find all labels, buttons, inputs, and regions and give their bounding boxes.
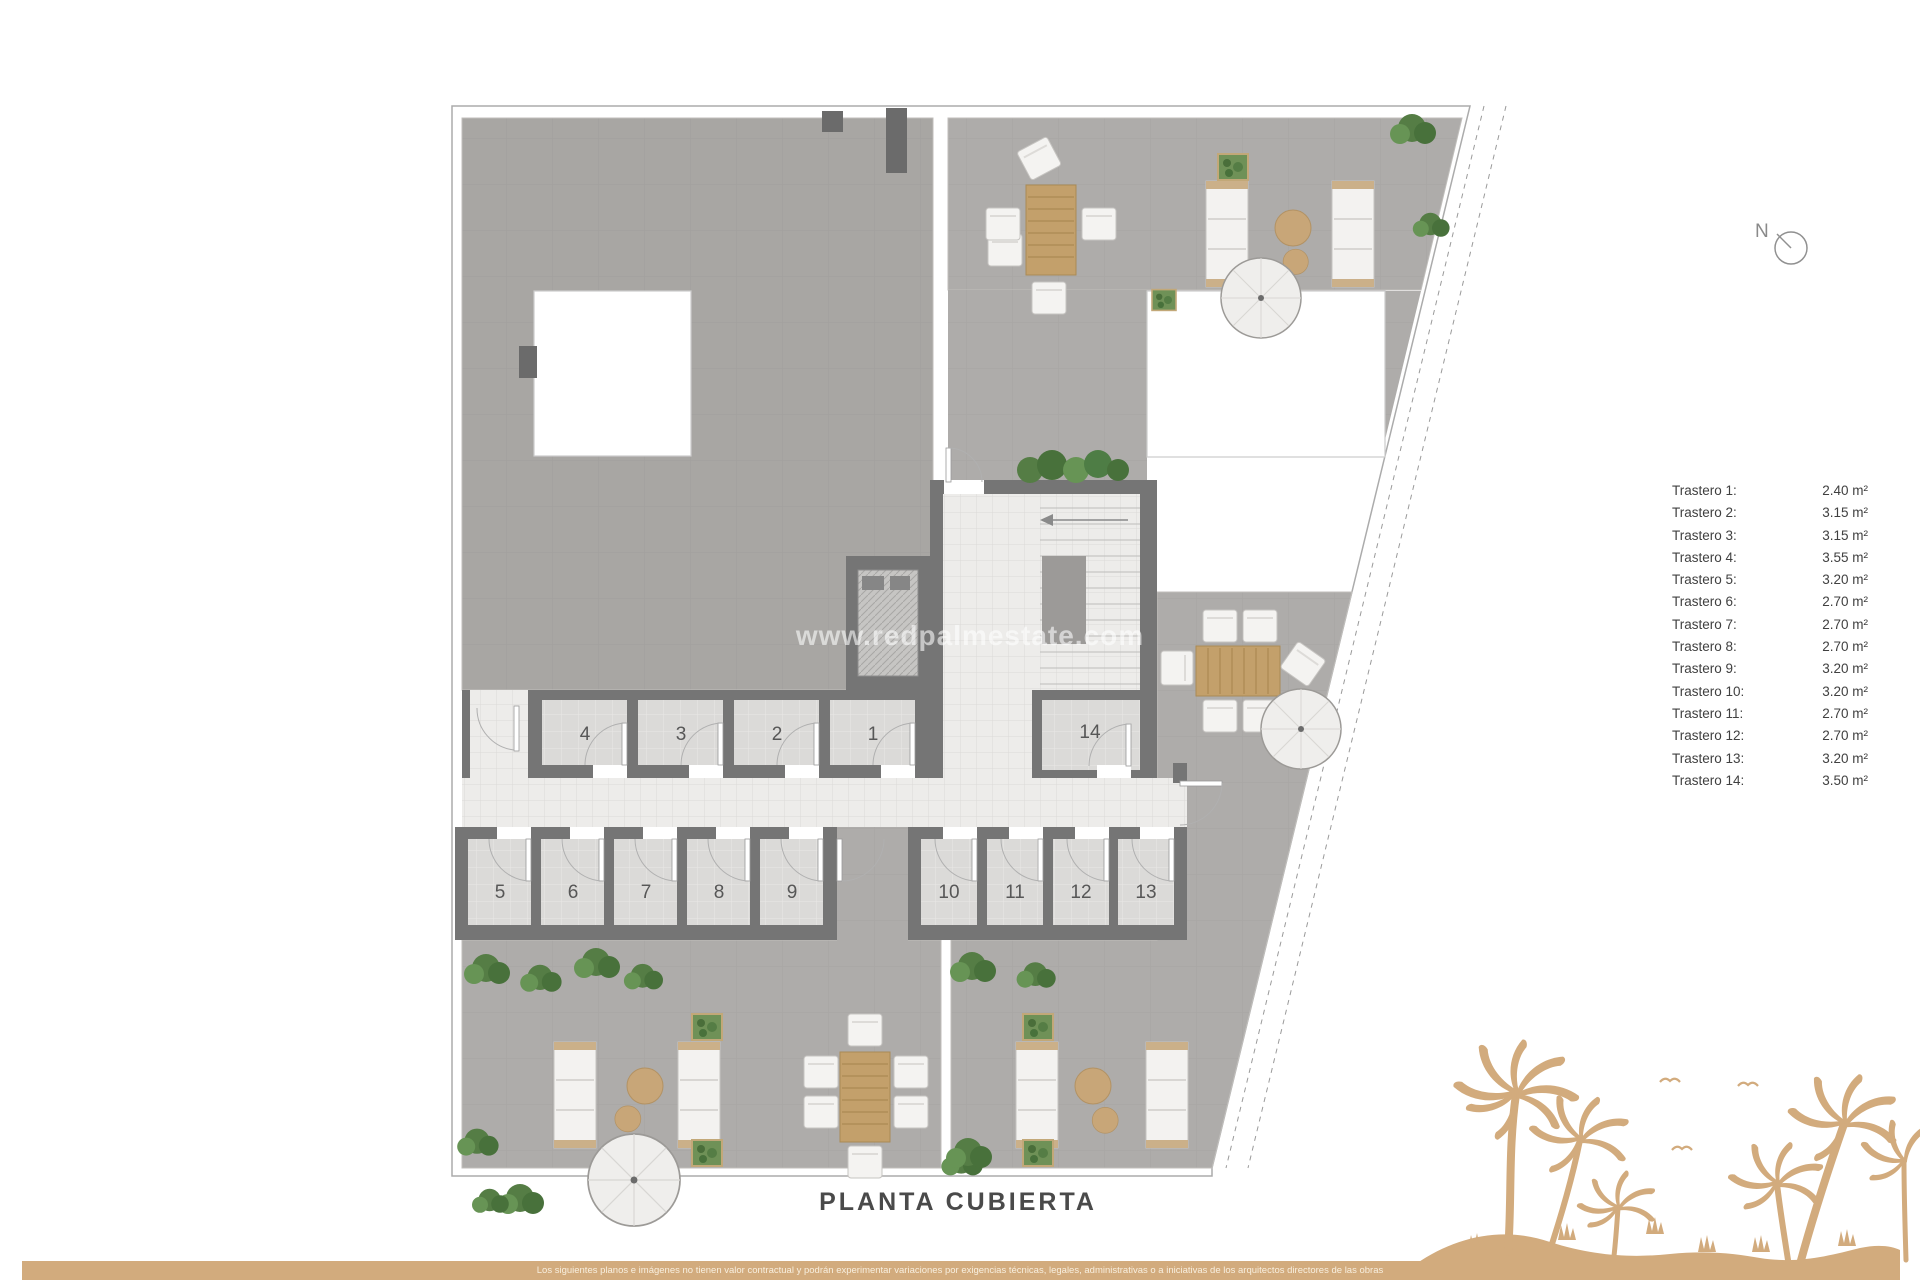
legend-row: Trastero 5:3.20 m² (1672, 569, 1868, 591)
sun-lounger (1332, 181, 1374, 287)
sun-lounger (678, 1042, 720, 1148)
legend-area: 2.40 m² (1822, 480, 1868, 502)
room-label: 7 (641, 882, 652, 903)
legend-area: 3.20 m² (1822, 748, 1868, 770)
storage-block-top (462, 690, 930, 778)
north-compass: N (1745, 212, 1835, 282)
roof-block-small (519, 346, 537, 378)
legend-area: 2.70 m² (1822, 636, 1868, 658)
legend-label: Trastero 9: (1672, 658, 1737, 680)
room-label: 4 (580, 724, 591, 745)
legend-label: Trastero 8: (1672, 636, 1737, 658)
parasol (1221, 258, 1301, 338)
planter-box (1023, 1014, 1053, 1040)
legend-area: 2.70 m² (1822, 614, 1868, 636)
planter-box (1218, 154, 1248, 180)
legend-area: 3.50 m² (1822, 770, 1868, 792)
dining-set-right (1196, 646, 1280, 696)
room-label: 9 (787, 882, 798, 903)
corridor-end-wall (1173, 763, 1187, 783)
pouf (1075, 1068, 1111, 1104)
passage (837, 827, 908, 945)
sun-lounger (1146, 1042, 1188, 1148)
palm-crowns (1451, 1038, 1920, 1231)
legend-area: 2.70 m² (1822, 725, 1868, 747)
pouf-small (615, 1106, 641, 1132)
core-wall-right (1140, 480, 1157, 700)
storage-legend: Trastero 1:2.40 m² Trastero 2:3.15 m² Tr… (1672, 480, 1868, 792)
floorplan-page: 1 2 3 4 5 6 7 8 9 10 11 12 13 14 www.red… (0, 0, 1920, 1280)
room-label: 11 (1005, 882, 1025, 903)
legend-area: 2.70 m² (1822, 591, 1868, 613)
entry-door-leaf (946, 448, 951, 482)
compass-label: N (1755, 221, 1769, 242)
legend-label: Trastero 13: (1672, 748, 1744, 770)
legend-area: 3.55 m² (1822, 547, 1868, 569)
legend-label: Trastero 1: (1672, 480, 1737, 502)
legend-label: Trastero 14: (1672, 770, 1744, 792)
legend-row: Trastero 11:2.70 m² (1672, 703, 1868, 725)
room-label: 3 (676, 724, 687, 745)
room-label: 2 (772, 724, 783, 745)
parasol (588, 1134, 680, 1226)
legend-area: 3.20 m² (1822, 681, 1868, 703)
room-label: 10 (938, 882, 959, 903)
vestibule-door-leaf (514, 706, 519, 751)
legend-row: Trastero 3:3.15 m² (1672, 525, 1868, 547)
pouf-small (1092, 1107, 1118, 1133)
room-label: 13 (1135, 882, 1156, 903)
terrace-top-right (948, 118, 1462, 290)
legend-row: Trastero 1:2.40 m² (1672, 480, 1868, 502)
footer-bar: Los siguientes planos e imágenes no tien… (22, 1261, 1898, 1280)
corridor-floor (462, 778, 1187, 827)
legend-area: 3.20 m² (1822, 569, 1868, 591)
disclaimer-text: Los siguientes planos e imágenes no tien… (22, 1261, 1898, 1280)
birds (1660, 1079, 1758, 1150)
legend-row: Trastero 7:2.70 m² (1672, 614, 1868, 636)
sun-lounger (1016, 1042, 1058, 1148)
legend-label: Trastero 11: (1672, 703, 1743, 725)
watermark: www.redpalmestate.com (740, 620, 1200, 652)
legend-area: 2.70 m² (1822, 703, 1868, 725)
planter-box (1023, 1140, 1053, 1166)
legend-area: 3.15 m² (1822, 525, 1868, 547)
room-label: 6 (568, 882, 579, 903)
legend-row: Trastero 6:2.70 m² (1672, 591, 1868, 613)
palm-scene (1408, 1010, 1920, 1280)
planter-box (692, 1140, 722, 1166)
legend-label: Trastero 12: (1672, 725, 1744, 747)
sun-lounger (554, 1042, 596, 1148)
skylight-void-left (534, 291, 691, 456)
legend-area: 3.20 m² (1822, 658, 1868, 680)
legend-label: Trastero 2: (1672, 502, 1737, 524)
pouf (627, 1068, 663, 1104)
terrace-door-leaf (1180, 781, 1222, 786)
room-label: 8 (714, 882, 725, 903)
legend-label: Trastero 3: (1672, 525, 1737, 547)
chimney-2 (886, 108, 907, 173)
room-label: 5 (495, 882, 506, 903)
legend-row: Trastero 9:3.20 m² (1672, 658, 1868, 680)
parasol (1261, 689, 1341, 769)
room-label: 12 (1070, 882, 1091, 903)
legend-row: Trastero 12:2.70 m² (1672, 725, 1868, 747)
chimney-1 (822, 111, 843, 132)
vestibule-wall (462, 690, 470, 778)
planter-box (692, 1014, 722, 1040)
legend-row: Trastero 10:3.20 m² (1672, 681, 1868, 703)
legend-area: 3.15 m² (1822, 502, 1868, 524)
legend-label: Trastero 5: (1672, 569, 1737, 591)
room-label: 1 (868, 724, 879, 745)
legend-label: Trastero 10: (1672, 681, 1744, 703)
legend-row: Trastero 4:3.55 m² (1672, 547, 1868, 569)
pouf (1275, 210, 1311, 246)
planter-box (1152, 290, 1176, 311)
legend-row: Trastero 8:2.70 m² (1672, 636, 1868, 658)
plan-title: PLANTA CUBIERTA (758, 1188, 1158, 1217)
legend-label: Trastero 4: (1672, 547, 1737, 569)
legend-label: Trastero 6: (1672, 591, 1737, 613)
room-label: 14 (1079, 722, 1101, 743)
legend-row: Trastero 14:3.50 m² (1672, 770, 1868, 792)
legend-label: Trastero 7: (1672, 614, 1737, 636)
terrace-sliver (1385, 291, 1421, 440)
legend-row: Trastero 2:3.15 m² (1672, 502, 1868, 524)
legend-row: Trastero 13:3.20 m² (1672, 748, 1868, 770)
